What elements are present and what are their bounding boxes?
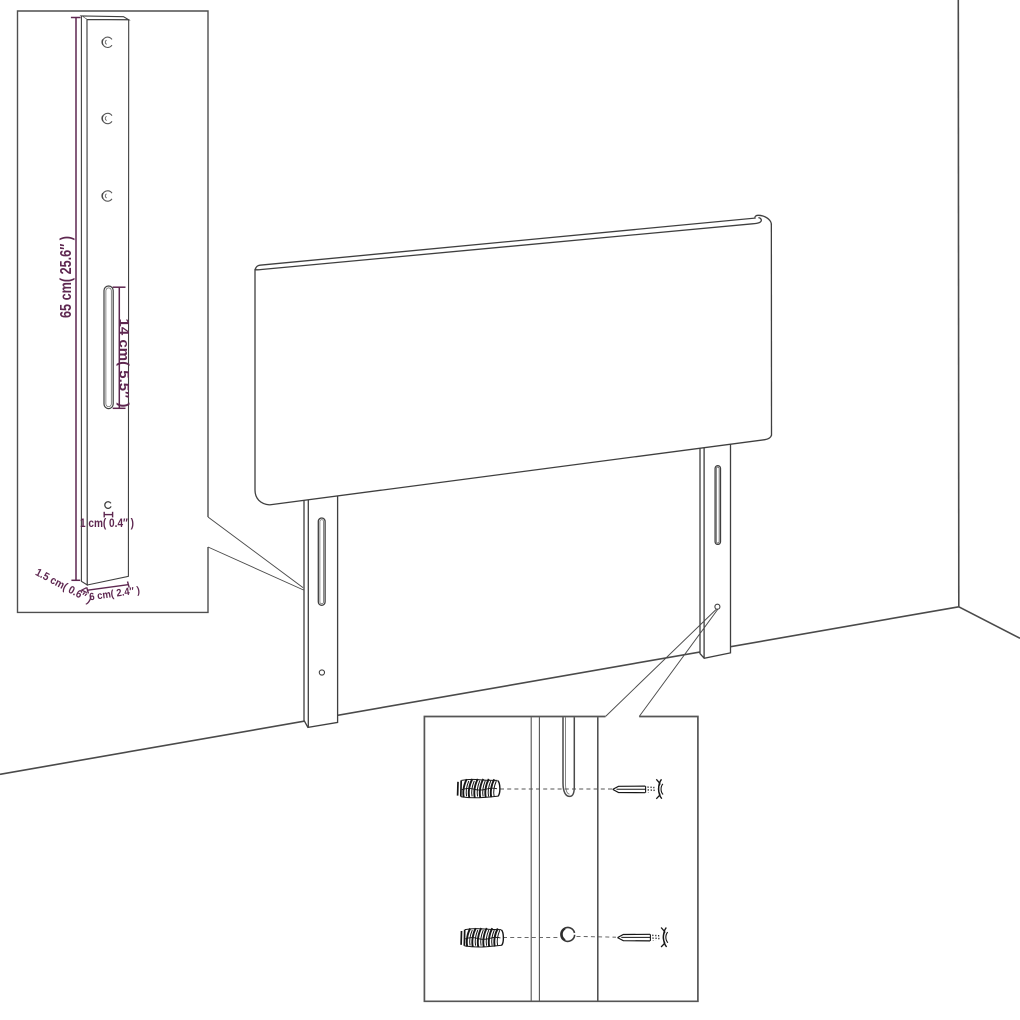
svg-text:1 cm( 0.4″ ): 1 cm( 0.4″ ) [80,518,134,530]
svg-text:65 cm( 25.6″ ): 65 cm( 25.6″ ) [58,236,75,318]
svg-text:14 cm( 5.5″ ): 14 cm( 5.5″ ) [117,319,133,408]
